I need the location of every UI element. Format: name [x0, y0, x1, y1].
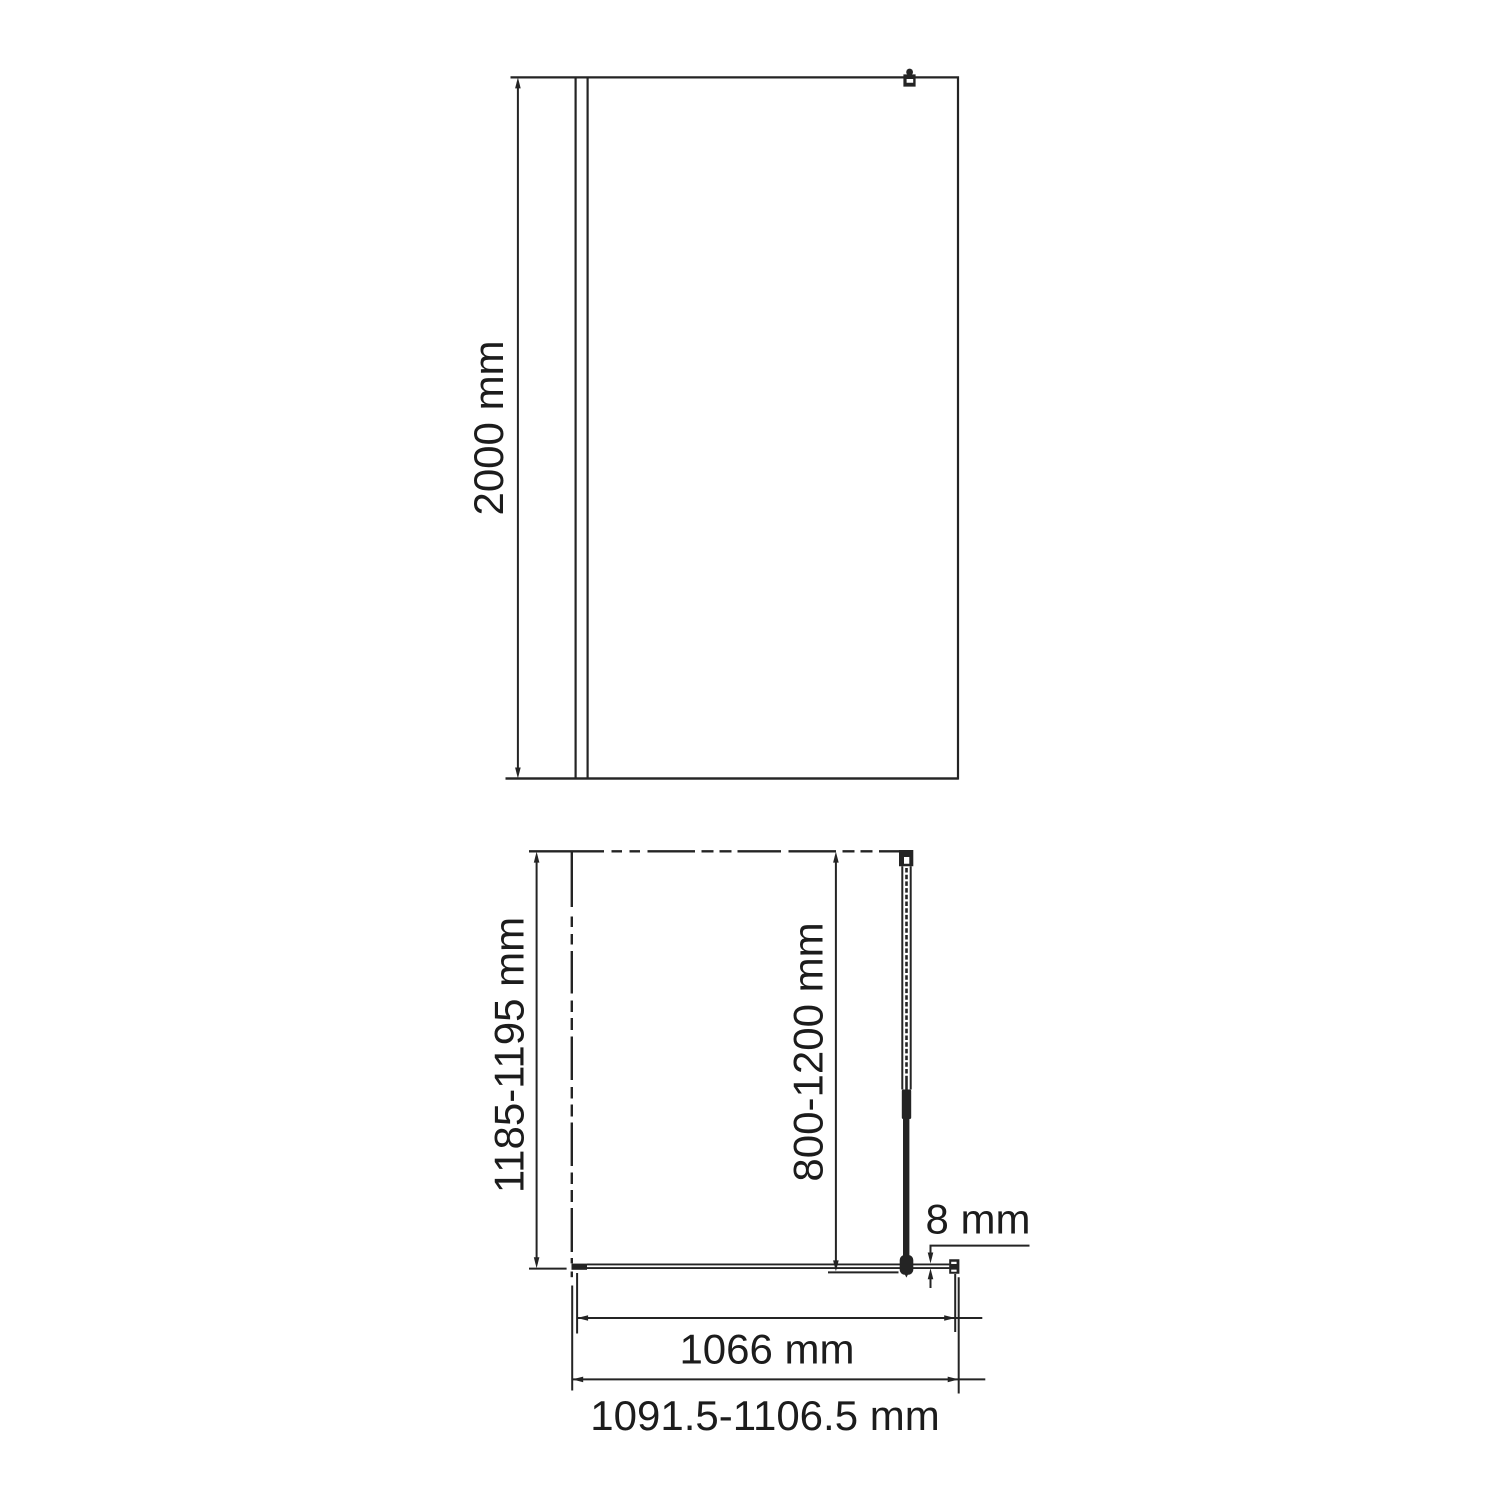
svg-text:1066 mm: 1066 mm: [679, 1326, 854, 1373]
svg-text:800-1200 mm: 800-1200 mm: [784, 922, 831, 1181]
svg-text:1091.5-1106.5 mm: 1091.5-1106.5 mm: [590, 1392, 939, 1439]
svg-text:1185-1195 mm: 1185-1195 mm: [485, 917, 532, 1193]
svg-text:8 mm: 8 mm: [926, 1196, 1031, 1243]
svg-text:2000 mm: 2000 mm: [465, 340, 512, 515]
